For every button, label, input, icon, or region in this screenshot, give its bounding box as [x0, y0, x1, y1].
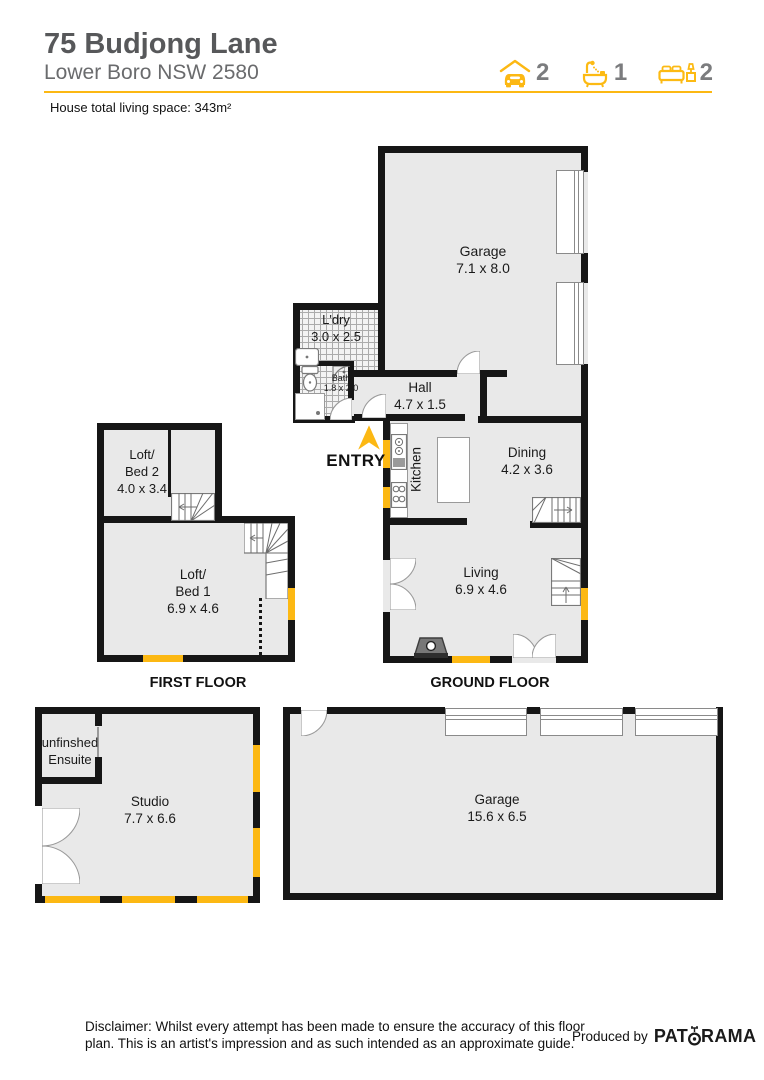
window-marker: [122, 896, 175, 903]
studio-room-label: Studio 7.7 x 6.6: [124, 793, 176, 827]
kitchen-room-label: Kitchen: [409, 422, 426, 518]
bed-stat: 2: [658, 59, 713, 88]
garage-door-swing: [457, 351, 480, 374]
floorplan-page: 75 Budjong Lane Lower Boro NSW 2580 2: [0, 0, 764, 1080]
bathtub-icon: [580, 59, 610, 88]
disclaimer-text: Disclaimer: Whilst every attempt has bee…: [85, 1018, 585, 1052]
ground-floor-label: GROUND FLOOR: [430, 675, 549, 691]
garage-count: 2: [536, 59, 549, 87]
living-stairs: [551, 558, 581, 606]
wall: [581, 146, 588, 172]
wall: [97, 423, 104, 662]
garage-roller-door: [540, 708, 623, 736]
brand-prefix: PAT: [654, 1026, 688, 1047]
window-marker: [143, 655, 183, 662]
wall: [378, 146, 588, 153]
wall: [480, 370, 507, 377]
window-marker: [288, 588, 295, 620]
shower-drain: [316, 411, 320, 415]
french-door-top: [390, 558, 416, 584]
garage-roller-door: [556, 170, 584, 254]
first-floor-label: FIRST FLOOR: [150, 675, 247, 691]
wall: [556, 656, 588, 663]
toilet: [301, 366, 319, 392]
garage-roller-door: [556, 282, 584, 365]
bath-count: 1: [614, 59, 627, 87]
loft-edge-dotted-line: [259, 598, 262, 655]
fireplace: [414, 636, 448, 658]
shower: [295, 393, 325, 420]
window-marker: [383, 487, 390, 508]
hall-room-label: Hall 4.7 x 1.5: [394, 379, 446, 413]
french-door-bottom: [390, 584, 416, 610]
page-title: 75 Budjong Lane: [44, 28, 278, 61]
window-marker: [581, 588, 588, 620]
wall: [97, 655, 295, 662]
produced-by: Produced by PAT RAMA: [572, 1026, 756, 1047]
wall: [95, 707, 102, 726]
studio-double-door-top: [42, 808, 80, 846]
living-space-note: House total living space: 343m²: [50, 100, 231, 115]
page-subtitle: Lower Boro NSW 2580: [44, 61, 259, 85]
window-marker: [197, 896, 248, 903]
tripod-camera-icon: [687, 1026, 702, 1047]
dining-room-label: Dining 4.2 x 3.6: [501, 444, 553, 478]
window-marker: [452, 656, 490, 663]
laundry-room-label: L'dry 3.0 x 2.5: [311, 311, 361, 345]
bath-stat: 1: [580, 59, 627, 88]
kitchen-island: [437, 437, 470, 503]
bed1-room-label: Loft/ Bed 1 6.9 x 4.6: [167, 566, 219, 617]
window-marker: [253, 745, 260, 792]
wall: [581, 364, 588, 588]
garage-room-label: Garage 7.1 x 8.0: [456, 243, 510, 277]
bed-count: 2: [700, 59, 713, 87]
bed-icon: [658, 59, 696, 88]
wall: [490, 656, 512, 663]
living-double-door-right: [532, 634, 556, 658]
living-room-label: Living 6.9 x 4.6: [455, 564, 507, 598]
studio-double-door-bottom: [42, 846, 80, 884]
wall: [527, 707, 540, 714]
bed2-room-label: Loft/ Bed 2 4.0 x 3.4: [117, 446, 167, 497]
wall: [97, 423, 222, 430]
produced-by-text: Produced by: [572, 1029, 648, 1044]
garage-roller-door: [445, 708, 527, 736]
entry-label: ENTRY: [326, 451, 386, 471]
bed1-stairs: [244, 523, 288, 599]
wall: [623, 707, 635, 714]
entry-arrow: [356, 424, 382, 452]
wall: [168, 427, 171, 497]
bath-door-swing: [330, 398, 352, 420]
wall: [293, 303, 385, 310]
window-marker: [253, 828, 260, 877]
accent-divider: [44, 91, 712, 93]
wall: [581, 253, 588, 283]
wall: [378, 146, 385, 377]
laundry-tub: [295, 348, 319, 366]
lower-garage-room-label: Garage 15.6 x 6.5: [467, 791, 526, 825]
ensuite-room-label: unfinshed Ensuite: [42, 734, 98, 768]
kitchen-sink: [391, 434, 407, 470]
stove-cooktop: [391, 482, 407, 508]
bath-room-label: Bath 1.8 x 2.0: [324, 373, 359, 393]
wall: [35, 707, 260, 714]
wall: [478, 416, 588, 423]
bed2-stairs: [171, 493, 215, 521]
garage-car-icon: [499, 59, 532, 88]
entry-door-swing: [362, 394, 386, 418]
lower-garage-door-swing: [301, 710, 327, 736]
wall: [383, 518, 467, 525]
property-stats: 2 1 2: [499, 54, 713, 92]
wall: [283, 893, 723, 900]
garage-stat: 2: [499, 59, 549, 88]
garage-roller-door: [635, 708, 718, 736]
wall: [35, 777, 102, 784]
wall: [352, 370, 457, 377]
wall: [283, 707, 290, 900]
wall: [215, 423, 222, 523]
wall: [327, 707, 445, 714]
dining-stairs: [532, 497, 581, 523]
patorama-logo: PAT RAMA: [654, 1026, 756, 1047]
window-marker: [45, 896, 100, 903]
brand-suffix: RAMA: [701, 1026, 756, 1047]
